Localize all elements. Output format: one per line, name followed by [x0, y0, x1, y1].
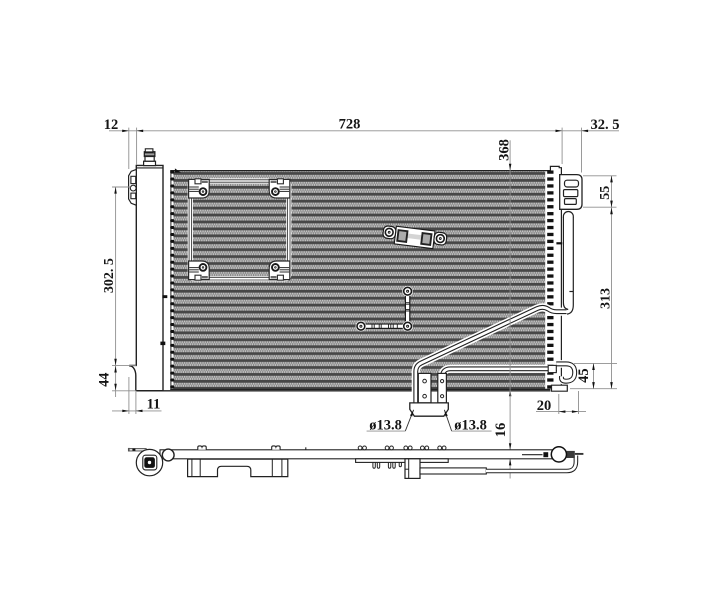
- svg-text:45: 45: [576, 368, 592, 383]
- svg-text:313: 313: [599, 288, 614, 309]
- svg-text:20: 20: [537, 398, 552, 414]
- svg-text:728: 728: [339, 117, 361, 133]
- svg-text:11: 11: [147, 396, 161, 412]
- svg-text:12: 12: [104, 117, 119, 133]
- svg-text:ø13.8: ø13.8: [454, 417, 487, 433]
- svg-text:55: 55: [598, 186, 613, 200]
- svg-text:ø13.8: ø13.8: [369, 417, 402, 433]
- svg-text:32. 5: 32. 5: [591, 117, 620, 133]
- svg-text:302. 5: 302. 5: [102, 258, 117, 293]
- svg-text:16: 16: [493, 423, 509, 438]
- svg-text:44: 44: [97, 373, 113, 387]
- svg-text:368: 368: [497, 139, 513, 161]
